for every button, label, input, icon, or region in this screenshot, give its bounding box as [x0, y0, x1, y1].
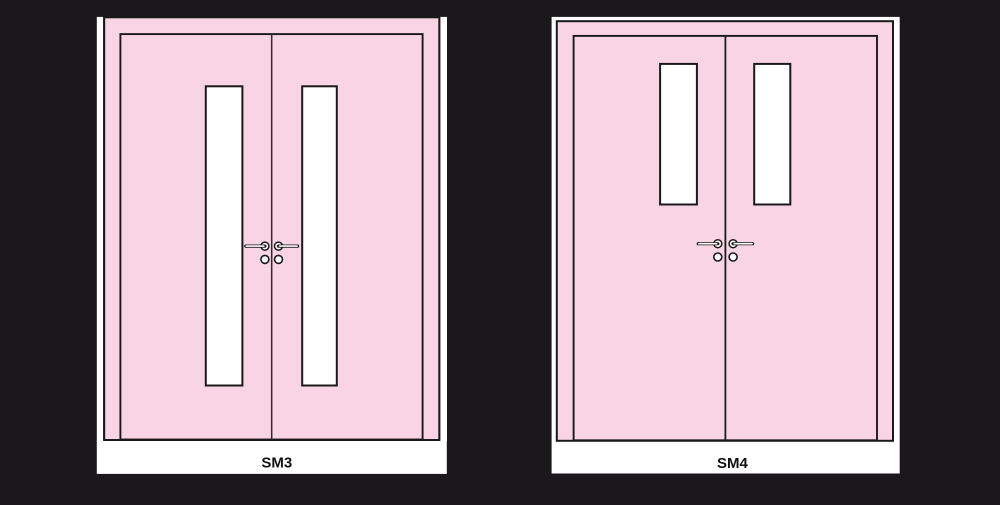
svg-text:SM3: SM3	[261, 455, 292, 472]
svg-text:SM4: SM4	[717, 455, 749, 472]
